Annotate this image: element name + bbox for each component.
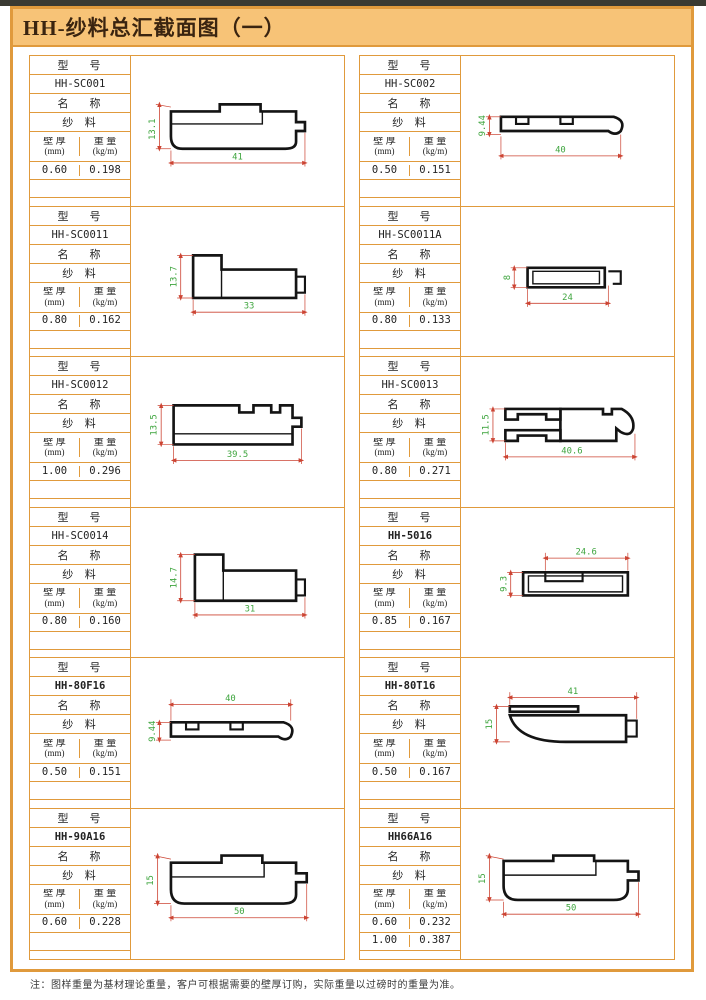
thickness-value: 0.80 <box>30 616 80 627</box>
cross-section-drawing: 15 50 <box>131 809 344 959</box>
thickness-header: 壁 厚(mm) <box>30 137 80 157</box>
model-number: HH-SC0013 <box>360 376 460 395</box>
cross-section-drawing: 13.1 41 <box>131 56 344 206</box>
spec-table: 型 号 HH-SC001 名 称 纱 料 壁 厚(mm)重 量(kg/m) 0.… <box>30 56 131 206</box>
material-name: 纱 料 <box>360 565 460 584</box>
model-label: 型 号 <box>30 207 130 226</box>
model-number: HH-SC001 <box>30 75 130 94</box>
weight-header: 重 量(kg/m) <box>410 889 460 909</box>
thickness-header: 壁 厚(mm) <box>30 287 80 307</box>
weight-header: 重 量(kg/m) <box>410 287 460 307</box>
profile-outline <box>501 117 622 134</box>
material-name: 纱 料 <box>360 866 460 885</box>
model-number: HH-SC0011A <box>360 226 460 245</box>
name-label: 名 称 <box>360 395 460 414</box>
thickness-header: 壁 厚(mm) <box>30 739 80 759</box>
height-dimension: 9.3 <box>499 575 509 591</box>
model-number: HH-SC0011 <box>30 226 130 245</box>
width-dimension: 41 <box>567 687 578 697</box>
model-number: HH-90A16 <box>30 828 130 847</box>
profile-cell: 型 号 HH-SC002 名 称 纱 料 壁 厚(mm)重 量(kg/m) 0.… <box>359 55 675 207</box>
page-title: HH-纱料总汇截面图（一） <box>23 12 286 42</box>
cross-section-drawing: 8 24 <box>461 207 674 357</box>
thickness-value: 0.50 <box>360 767 410 778</box>
thickness-value: 0.80 <box>360 466 410 477</box>
name-label: 名 称 <box>360 847 460 866</box>
model-label: 型 号 <box>30 658 130 677</box>
profile-outline <box>195 554 296 600</box>
spec-table: 型 号 HH-SC002 名 称 纱 料 壁 厚(mm)重 量(kg/m) 0.… <box>360 56 461 206</box>
thickness-header: 壁 厚(mm) <box>360 137 410 157</box>
height-dimension: 8 <box>503 274 513 279</box>
profile-outline <box>171 722 292 739</box>
name-label: 名 称 <box>360 546 460 565</box>
thickness-header: 壁 厚(mm) <box>360 739 410 759</box>
profile-cell: 型 号 HH-5016 名 称 纱 料 壁 厚(mm)重 量(kg/m) 0.8… <box>359 507 675 659</box>
height-dimension: 15 <box>478 873 488 884</box>
page-frame: HH-纱料总汇截面图（一） 型 号 HH-SC001 名 称 纱 料 壁 厚(m… <box>10 6 694 972</box>
weight-header: 重 量(kg/m) <box>80 739 130 759</box>
model-label: 型 号 <box>360 357 460 376</box>
profile-outline <box>510 715 626 742</box>
height-dimension: 15 <box>485 719 495 730</box>
profile-outline <box>174 405 302 444</box>
material-name: 纱 料 <box>30 414 130 433</box>
material-name: 纱 料 <box>30 715 130 734</box>
profile-cell: 型 号 HH-SC001 名 称 纱 料 壁 厚(mm)重 量(kg/m) 0.… <box>29 55 345 207</box>
weight-value: 0.198 <box>80 165 130 176</box>
cross-section-drawing: 9.44 40 <box>461 56 674 206</box>
thickness-header: 壁 厚(mm) <box>30 438 80 458</box>
thickness-value: 0.50 <box>360 165 410 176</box>
weight-value: 0.162 <box>80 315 130 326</box>
profile-outline <box>560 409 633 441</box>
weight-value: 0.228 <box>80 917 130 928</box>
profile-outline <box>171 104 305 148</box>
name-label: 名 称 <box>360 245 460 264</box>
title-bar: HH-纱料总汇截面图（一） <box>13 9 691 47</box>
model-label: 型 号 <box>360 658 460 677</box>
model-label: 型 号 <box>360 56 460 75</box>
weight-value: 0.133 <box>410 315 460 326</box>
cross-section-drawing: 11.5 40.6 <box>461 357 674 507</box>
weight-header: 重 量(kg/m) <box>80 588 130 608</box>
weight-header: 重 量(kg/m) <box>410 739 460 759</box>
profile-cell: 型 号 HH-90A16 名 称 纱 料 壁 厚(mm)重 量(kg/m) 0.… <box>29 808 345 960</box>
profile-grid: 型 号 HH-SC001 名 称 纱 料 壁 厚(mm)重 量(kg/m) 0.… <box>13 47 691 960</box>
height-dimension: 9.44 <box>478 115 488 136</box>
model-number: HH-SC0014 <box>30 527 130 546</box>
weight-value: 0.167 <box>410 616 460 627</box>
thickness-value: 0.50 <box>30 767 80 778</box>
model-label: 型 号 <box>30 56 130 75</box>
profile-cell: 型 号 HH-SC0013 名 称 纱 料 壁 厚(mm)重 量(kg/m) 0… <box>359 356 675 508</box>
spec-table: 型 号 HH-90A16 名 称 纱 料 壁 厚(mm)重 量(kg/m) 0.… <box>30 809 131 959</box>
model-number: HH-80F16 <box>30 677 130 696</box>
spec-table: 型 号 HH-SC0014 名 称 纱 料 壁 厚(mm)重 量(kg/m) 0… <box>30 508 131 658</box>
height-dimension: 15 <box>146 875 156 886</box>
model-number: HH-80T16 <box>360 677 460 696</box>
width-dimension: 24 <box>562 292 573 302</box>
model-label: 型 号 <box>360 207 460 226</box>
thickness-value: 1.00 <box>360 935 410 946</box>
weight-value: 0.160 <box>80 616 130 627</box>
thickness-value: 1.00 <box>30 466 80 477</box>
spec-table: 型 号 HH-SC0011A 名 称 纱 料 壁 厚(mm)重 量(kg/m) … <box>360 207 461 357</box>
weight-value: 0.387 <box>410 935 460 946</box>
profile-cell: 型 号 HH66A16 名 称 纱 料 壁 厚(mm)重 量(kg/m) 0.6… <box>359 808 675 960</box>
width-dimension: 40 <box>225 694 236 704</box>
width-dimension: 40.6 <box>561 446 582 456</box>
catalog-page: HH-纱料总汇截面图（一） 型 号 HH-SC001 名 称 纱 料 壁 厚(m… <box>0 0 706 1000</box>
thickness-header: 壁 厚(mm) <box>30 889 80 909</box>
weight-header: 重 量(kg/m) <box>80 287 130 307</box>
width-dimension: 41 <box>232 152 243 162</box>
profile-outline <box>171 855 307 903</box>
profile-cell: 型 号 HH-SC0012 名 称 纱 料 壁 厚(mm)重 量(kg/m) 1… <box>29 356 345 508</box>
profile-outline <box>504 855 639 899</box>
model-label: 型 号 <box>30 809 130 828</box>
cross-section-drawing: 24.6 9.3 <box>461 508 674 658</box>
material-name: 纱 料 <box>360 113 460 132</box>
width-dimension: 24.6 <box>575 547 596 557</box>
cross-section-drawing: 40 9.44 <box>131 658 344 808</box>
model-label: 型 号 <box>360 508 460 527</box>
weight-value: 0.167 <box>410 767 460 778</box>
weight-value: 0.151 <box>410 165 460 176</box>
name-label: 名 称 <box>360 94 460 113</box>
width-dimension: 39.5 <box>227 450 248 460</box>
thickness-value: 0.85 <box>360 616 410 627</box>
spec-table: 型 号 HH-80T16 名 称 纱 料 壁 厚(mm)重 量(kg/m) 0.… <box>360 658 461 808</box>
name-label: 名 称 <box>30 847 130 866</box>
model-number: HH-SC002 <box>360 75 460 94</box>
model-label: 型 号 <box>30 357 130 376</box>
thickness-header: 壁 厚(mm) <box>360 889 410 909</box>
name-label: 名 称 <box>30 245 130 264</box>
weight-value: 0.296 <box>80 466 130 477</box>
profile-cell: 型 号 HH-80T16 名 称 纱 料 壁 厚(mm)重 量(kg/m) 0.… <box>359 657 675 809</box>
spec-table: 型 号 HH-SC0013 名 称 纱 料 壁 厚(mm)重 量(kg/m) 0… <box>360 357 461 507</box>
weight-header: 重 量(kg/m) <box>80 889 130 909</box>
cross-section-drawing: 14.7 31 <box>131 508 344 658</box>
weight-header: 重 量(kg/m) <box>410 588 460 608</box>
weight-value: 0.232 <box>410 917 460 928</box>
weight-header: 重 量(kg/m) <box>80 137 130 157</box>
model-label: 型 号 <box>30 508 130 527</box>
weight-header: 重 量(kg/m) <box>410 438 460 458</box>
thickness-header: 壁 厚(mm) <box>360 438 410 458</box>
material-name: 纱 料 <box>30 866 130 885</box>
height-dimension: 13.1 <box>148 119 158 140</box>
weight-value: 0.151 <box>80 767 130 778</box>
model-number: HH-5016 <box>360 527 460 546</box>
model-number: HH66A16 <box>360 828 460 847</box>
cross-section-drawing: 13.5 39.5 <box>131 357 344 507</box>
height-dimension: 13.7 <box>169 266 179 287</box>
profile-cell: 型 号 HH-80F16 名 称 纱 料 壁 厚(mm)重 量(kg/m) 0.… <box>29 657 345 809</box>
material-name: 纱 料 <box>30 565 130 584</box>
width-dimension: 50 <box>234 907 245 917</box>
width-dimension: 50 <box>566 903 577 913</box>
thickness-header: 壁 厚(mm) <box>360 588 410 608</box>
cross-section-drawing: 15 50 <box>461 809 674 959</box>
width-dimension: 31 <box>245 604 256 614</box>
weight-header: 重 量(kg/m) <box>80 438 130 458</box>
model-number: HH-SC0012 <box>30 376 130 395</box>
height-dimension: 9.44 <box>148 721 158 742</box>
profile-outline <box>193 255 296 298</box>
name-label: 名 称 <box>30 94 130 113</box>
spec-table: 型 号 HH-SC0011 名 称 纱 料 壁 厚(mm)重 量(kg/m) 0… <box>30 207 131 357</box>
name-label: 名 称 <box>30 546 130 565</box>
thickness-value: 0.60 <box>30 917 80 928</box>
material-name: 纱 料 <box>360 715 460 734</box>
height-dimension: 11.5 <box>482 414 492 435</box>
profile-cell: 型 号 HH-SC0011 名 称 纱 料 壁 厚(mm)重 量(kg/m) 0… <box>29 206 345 358</box>
width-dimension: 33 <box>244 301 255 311</box>
name-label: 名 称 <box>30 696 130 715</box>
height-dimension: 14.7 <box>169 567 179 588</box>
spec-table: 型 号 HH-5016 名 称 纱 料 壁 厚(mm)重 量(kg/m) 0.8… <box>360 508 461 658</box>
weight-value: 0.271 <box>410 466 460 477</box>
thickness-value: 0.80 <box>30 315 80 326</box>
height-dimension: 13.5 <box>150 414 160 435</box>
profile-cell: 型 号 HH-SC0014 名 称 纱 料 壁 厚(mm)重 量(kg/m) 0… <box>29 507 345 659</box>
thickness-header: 壁 厚(mm) <box>30 588 80 608</box>
thickness-header: 壁 厚(mm) <box>360 287 410 307</box>
width-dimension: 40 <box>555 145 566 155</box>
spec-table: 型 号 HH66A16 名 称 纱 料 壁 厚(mm)重 量(kg/m) 0.6… <box>360 809 461 959</box>
weight-header: 重 量(kg/m) <box>410 137 460 157</box>
model-label: 型 号 <box>360 809 460 828</box>
thickness-value: 0.60 <box>360 917 410 928</box>
profile-cell: 型 号 HH-SC0011A 名 称 纱 料 壁 厚(mm)重 量(kg/m) … <box>359 206 675 358</box>
material-name: 纱 料 <box>30 264 130 283</box>
name-label: 名 称 <box>360 696 460 715</box>
cross-section-drawing: 13.7 33 <box>131 207 344 357</box>
material-name: 纱 料 <box>30 113 130 132</box>
name-label: 名 称 <box>30 395 130 414</box>
spec-table: 型 号 HH-80F16 名 称 纱 料 壁 厚(mm)重 量(kg/m) 0.… <box>30 658 131 808</box>
thickness-value: 0.60 <box>30 165 80 176</box>
material-name: 纱 料 <box>360 414 460 433</box>
footnote: 注：图样重量为基材理论重量，客户可根据需要的壁厚订购，实际重量以过磅时的重量为准… <box>30 976 461 991</box>
material-name: 纱 料 <box>360 264 460 283</box>
spec-table: 型 号 HH-SC0012 名 称 纱 料 壁 厚(mm)重 量(kg/m) 1… <box>30 357 131 507</box>
thickness-value: 0.80 <box>360 315 410 326</box>
cross-section-drawing: 41 15 <box>461 658 674 808</box>
